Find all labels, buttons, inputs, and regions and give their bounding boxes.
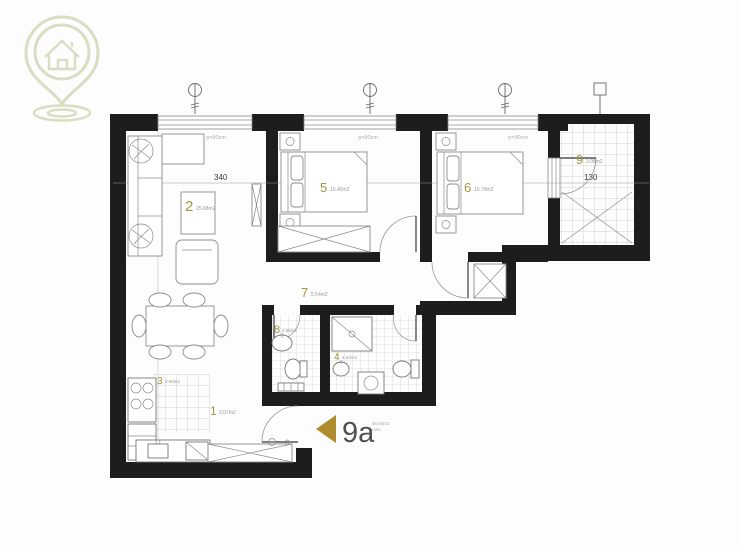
chair bbox=[183, 345, 205, 359]
double-bed bbox=[437, 152, 523, 214]
svg-text:8: 8 bbox=[274, 324, 280, 336]
parapet-label-2: p=90cm bbox=[358, 135, 378, 141]
axis-markers bbox=[189, 83, 607, 114]
nightstand bbox=[436, 216, 456, 233]
svg-text:10.79m2: 10.79m2 bbox=[474, 187, 494, 193]
kitchen-counter bbox=[136, 440, 210, 462]
parapet-label-1: p=90cm bbox=[206, 135, 226, 141]
svg-text:3.08m2: 3.08m2 bbox=[586, 159, 603, 165]
parapet-labels: p=90cm p=90cm p=90cm bbox=[206, 135, 528, 141]
svg-text:25.68m2: 25.68m2 bbox=[196, 206, 216, 212]
svg-text:2.95m2: 2.95m2 bbox=[282, 328, 298, 333]
sink bbox=[148, 444, 168, 458]
balcony-door-sill bbox=[548, 158, 560, 198]
svg-text:2: 2 bbox=[185, 198, 193, 215]
floor-plan-page: 340 343 303 130 p=90cm p=90cm p=90cm bbox=[0, 0, 740, 550]
hall-wardrobe bbox=[474, 264, 506, 298]
chair bbox=[149, 345, 171, 359]
closet bbox=[208, 444, 292, 462]
dim-terrace: 130 bbox=[584, 173, 598, 182]
bedroom5-door bbox=[380, 216, 416, 252]
radiator bbox=[252, 184, 261, 226]
svg-text:3: 3 bbox=[157, 376, 163, 387]
parapet-label-3: p=90cm bbox=[508, 135, 528, 141]
svg-text:5.54m2: 5.54m2 bbox=[311, 292, 328, 298]
svg-text:7: 7 bbox=[301, 285, 308, 300]
dining-table bbox=[146, 306, 214, 346]
chair bbox=[132, 315, 146, 337]
entrance-arrow-icon bbox=[316, 415, 336, 443]
svg-text:3.07m2: 3.07m2 bbox=[219, 410, 236, 416]
svg-text:4.63m2: 4.63m2 bbox=[342, 355, 358, 360]
unit-number: 9a bbox=[342, 417, 375, 449]
square-axis-marker bbox=[594, 83, 606, 114]
washing-machine bbox=[358, 372, 384, 394]
window bbox=[448, 116, 538, 129]
chair bbox=[149, 293, 171, 307]
svg-text:1: 1 bbox=[210, 404, 217, 418]
toilet bbox=[393, 360, 419, 378]
cabinet bbox=[162, 134, 204, 164]
shower bbox=[332, 317, 372, 351]
terrace-floor bbox=[560, 124, 634, 245]
toilet bbox=[285, 359, 307, 379]
dim-living: 340 bbox=[214, 173, 228, 182]
entrance-door bbox=[262, 406, 298, 446]
unit-area-line1: 55.90m2 bbox=[372, 421, 390, 426]
room-7-label: 75.54m2 bbox=[301, 285, 328, 300]
unit-label-group: 9a 55.90m2 neto bbox=[316, 415, 390, 449]
chair bbox=[183, 293, 205, 307]
unit-area-line2: neto bbox=[372, 427, 381, 432]
stove bbox=[128, 378, 156, 422]
bedroom6-door bbox=[432, 262, 468, 298]
svg-text:9: 9 bbox=[576, 152, 583, 167]
nightstand bbox=[280, 133, 300, 150]
radiator bbox=[278, 383, 304, 391]
living-room-furniture bbox=[128, 134, 261, 359]
svg-text:10.45m2: 10.45m2 bbox=[330, 187, 350, 193]
window bbox=[158, 116, 252, 129]
svg-text:3.98m2: 3.98m2 bbox=[165, 379, 181, 384]
armchair bbox=[176, 240, 218, 284]
floor-plan-drawing: 340 343 303 130 p=90cm p=90cm p=90cm bbox=[0, 0, 740, 550]
chair bbox=[214, 315, 228, 337]
svg-text:6: 6 bbox=[464, 180, 471, 195]
window bbox=[304, 116, 396, 129]
svg-text:5: 5 bbox=[320, 180, 327, 195]
svg-text:4: 4 bbox=[334, 352, 340, 363]
tiled-floors bbox=[154, 124, 634, 432]
wardrobe bbox=[278, 226, 370, 252]
room-1-label: 13.07m2 bbox=[210, 404, 236, 418]
nightstand bbox=[436, 133, 456, 150]
